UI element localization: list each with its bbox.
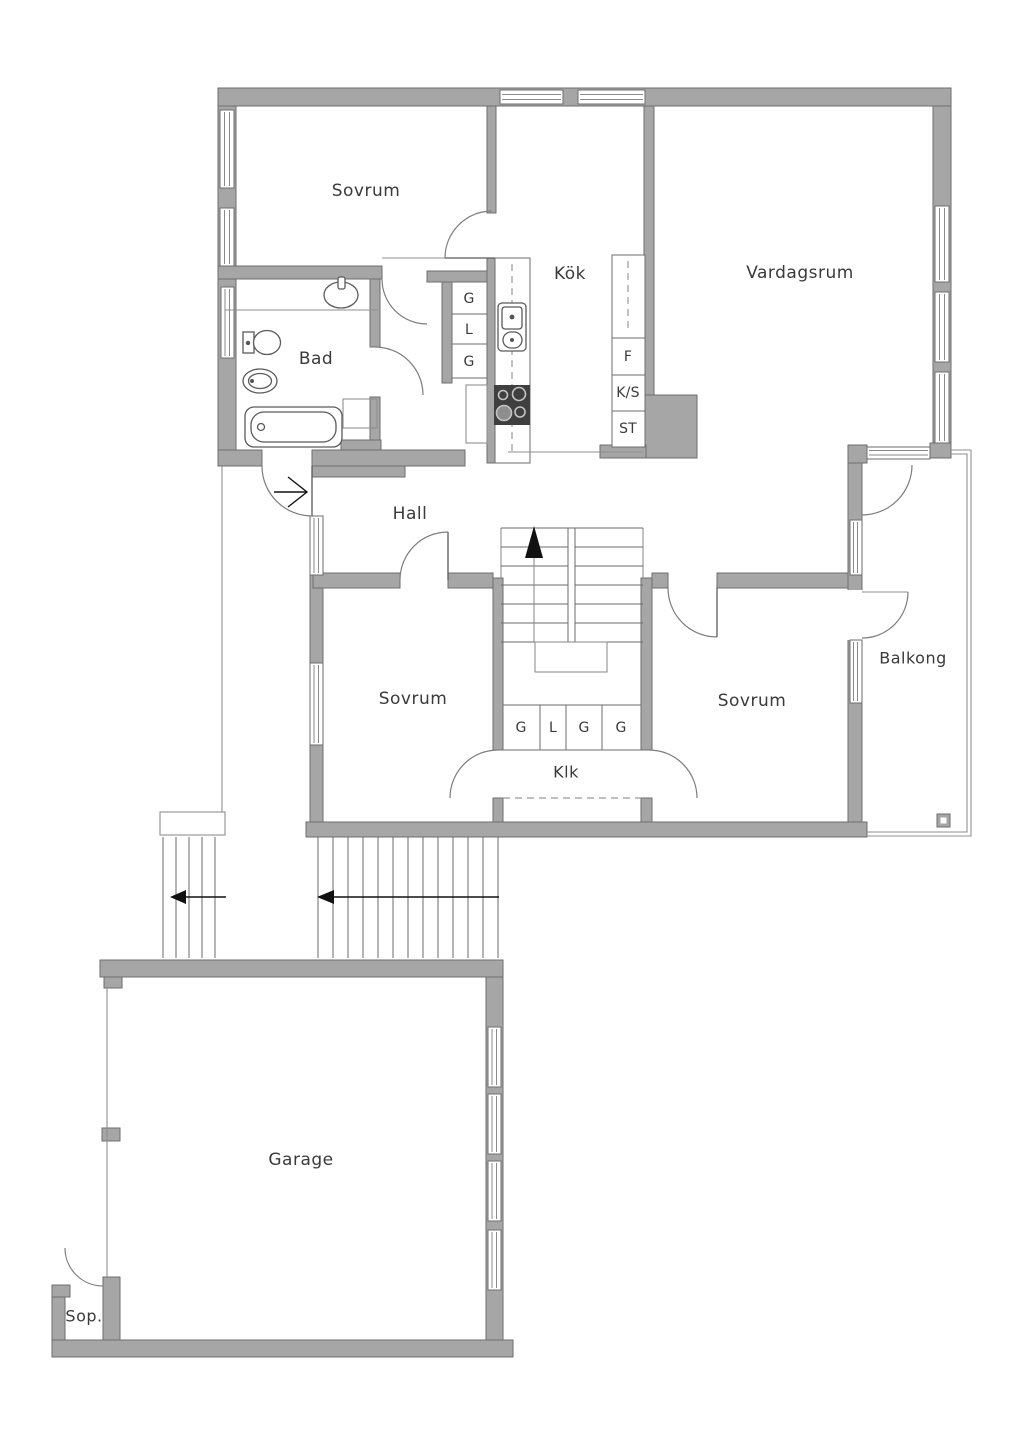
cabinet-label: L: [465, 322, 473, 338]
room-label-garage: Garage: [268, 1150, 333, 1170]
window-living-balcony: [850, 520, 862, 575]
wall-counter-back: [487, 258, 495, 463]
door-closet-east: [649, 750, 697, 798]
window-balcony-top: [867, 447, 930, 459]
room-label-bedroom-middle: Sovrum: [379, 689, 448, 709]
cabinet-label: G: [463, 291, 474, 307]
entry-direction-arrow-icon: [274, 477, 307, 507]
door-closet-west: [450, 750, 498, 798]
stair-landing: [535, 642, 607, 672]
window-bedroom2-west: [310, 663, 323, 745]
room-label-hall: Hall: [393, 504, 428, 524]
wall-balcony-top-right: [930, 443, 951, 458]
wall-corridor-east: [442, 282, 452, 383]
floor-plan: G L G F K/S ST: [0, 0, 1024, 1448]
closet-cabinet-label: G: [578, 720, 589, 736]
cabinet-label: G: [463, 354, 474, 370]
window-garage-3: [488, 1161, 501, 1221]
balcony-railing: [867, 450, 971, 836]
wall-sop-top-stub: [52, 1285, 70, 1297]
window-living-right-3: [935, 372, 949, 443]
wall-bedroom3-top-right: [717, 573, 848, 588]
stair-landing-outdoor: [160, 812, 225, 835]
bathtub: [245, 407, 342, 447]
wall-hall-top-left: [218, 450, 262, 466]
closet-cabinet-label: G: [615, 720, 626, 736]
wall-sop-right: [103, 1277, 120, 1340]
cabinet-label: ST: [619, 421, 637, 437]
kitchen-sink: [498, 303, 526, 351]
wall-hall-step: [312, 466, 405, 477]
room-label-sop: Sop.: [65, 1307, 102, 1326]
closet-cabinet-label: L: [549, 720, 557, 736]
walkway: [160, 466, 225, 835]
internal-staircase: [501, 526, 643, 672]
door-bedroom-kitchen: [382, 211, 495, 258]
door-bedroom-middle: [400, 532, 448, 580]
room-label-living-room: Vardagsrum: [746, 263, 854, 283]
wall-bath-east-upper: [370, 279, 380, 347]
window-bathroom: [221, 287, 234, 358]
room-label-balcony: Balkong: [879, 649, 947, 668]
door-sop: [65, 1248, 103, 1286]
window-bedroom3-balcony: [850, 640, 862, 703]
exterior-stairs-left: [163, 837, 226, 958]
window-garage-2: [488, 1094, 501, 1154]
window-hall-west: [310, 516, 323, 575]
room-label-bathroom: Bad: [299, 349, 333, 369]
entry-door: [262, 466, 312, 516]
window-bedroom-top-left-1: [220, 110, 234, 188]
cabinet-label: K/S: [616, 385, 639, 401]
room-label-kitchen: Kök: [554, 264, 586, 284]
floor-plan-page: G L G F K/S ST: [0, 0, 1024, 1448]
wall-hall-top-right: [312, 450, 465, 466]
stair-divider: [568, 528, 575, 642]
stairs-up-arrow-icon: [525, 526, 543, 558]
kitchen-worktop: [466, 385, 487, 443]
wall-bedroom2-top-left: [313, 573, 400, 588]
wall-bottom-long: [306, 822, 867, 837]
window-living-right-2: [935, 292, 949, 362]
door-bedroom-right: [668, 588, 717, 637]
balcony-drain: [937, 814, 950, 827]
window-living-right-1: [935, 206, 949, 282]
wall-garage-top: [100, 960, 503, 977]
room-label-bedroom-top: Sovrum: [332, 181, 401, 201]
wall-bedroom-kitchen: [487, 106, 496, 213]
window-kitchen-top-1: [500, 90, 563, 104]
wall-corner-block: [643, 395, 697, 458]
wall-garage-left-tick: [102, 1128, 120, 1141]
wall-garage-bottom: [52, 1340, 513, 1357]
window-kitchen-top-2: [578, 90, 645, 104]
room-label-bedroom-right: Sovrum: [718, 691, 787, 711]
window-garage-4: [488, 1230, 501, 1290]
stairs-down-arrow-left-icon: [170, 890, 226, 904]
room-label-closet: Klk: [553, 763, 579, 782]
wall-corridor-top: [427, 271, 495, 282]
balcony-door-opening: [846, 590, 864, 640]
wall-bath-top: [218, 266, 382, 279]
wall-balcony-top-left: [848, 445, 867, 463]
wall-bedroom3-top-left: [652, 573, 668, 588]
door-corridor-bedroom: [382, 279, 427, 324]
stove: [494, 385, 530, 425]
cabinet-label: F: [624, 349, 632, 365]
toilet: [243, 331, 281, 355]
door-living-balcony: [862, 465, 912, 515]
kitchen-cabinet-column-right: F K/S ST: [612, 255, 645, 447]
kitchen-cabinet-column-left: G L G: [452, 282, 487, 378]
hand-basin: [243, 369, 277, 393]
wall-garage-top-stub: [104, 977, 122, 988]
wall-bedroom2-west-lower: [310, 745, 323, 822]
window-garage-1: [488, 1027, 501, 1087]
wall-bedroom2-top-right: [448, 573, 493, 588]
door-bedroom3-balcony: [862, 592, 908, 638]
closet-cabinet-label: G: [515, 720, 526, 736]
window-bedroom-top-left-2: [220, 208, 234, 266]
door-bathroom: [375, 347, 423, 395]
exterior-stairs-right: [317, 837, 499, 958]
bathroom-sink: [324, 277, 358, 308]
kitchen-fixtures: G L G F K/S ST: [452, 255, 645, 463]
closet: G L G G: [503, 705, 641, 798]
